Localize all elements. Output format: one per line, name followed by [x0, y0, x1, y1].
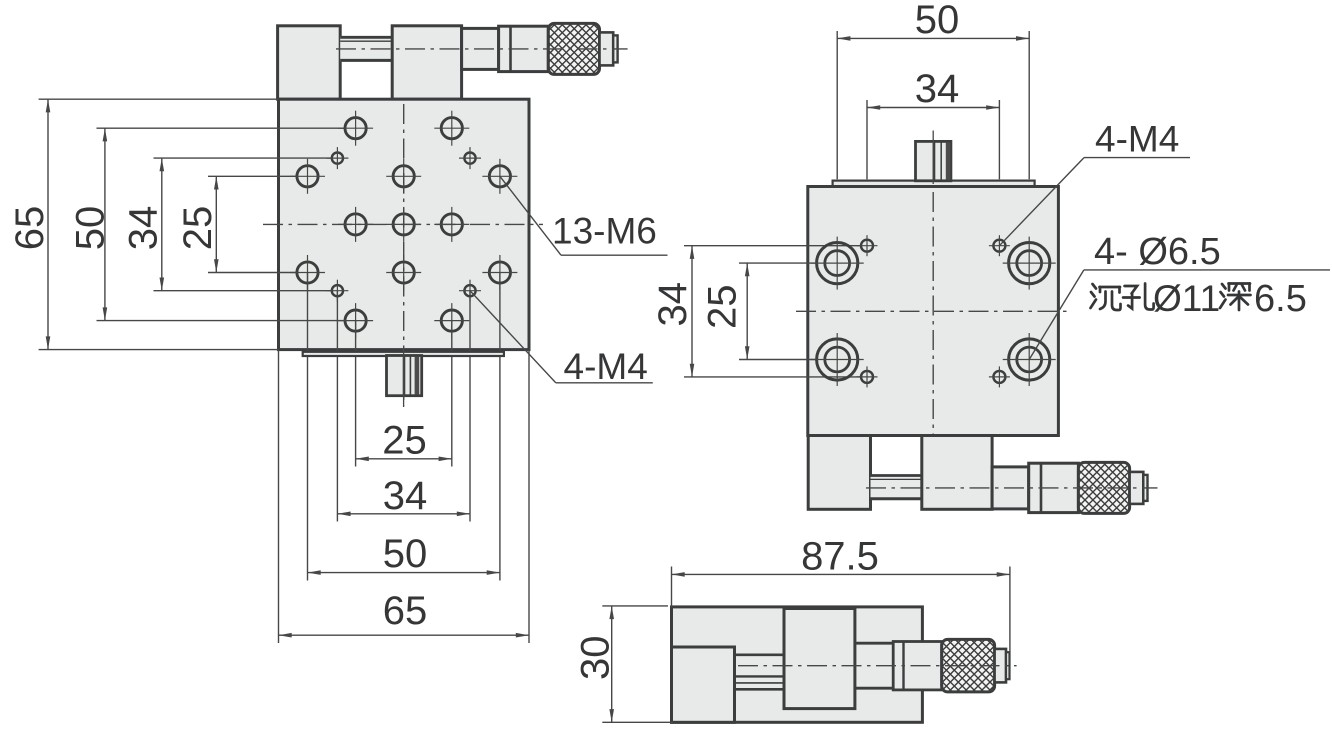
- svg-text:25: 25: [382, 419, 427, 463]
- svg-text:25: 25: [701, 284, 745, 329]
- svg-text:13-M6: 13-M6: [552, 211, 657, 252]
- svg-text:50: 50: [915, 0, 960, 42]
- svg-text:4- Ø6.5: 4- Ø6.5: [1094, 231, 1221, 273]
- svg-text:87.5: 87.5: [801, 535, 879, 579]
- svg-text:6.5: 6.5: [1254, 278, 1307, 320]
- svg-text:65: 65: [383, 589, 428, 633]
- svg-text:34: 34: [383, 474, 428, 518]
- svg-text:4-M4: 4-M4: [1095, 119, 1179, 160]
- svg-text:25: 25: [176, 206, 220, 251]
- svg-text:34: 34: [651, 282, 695, 327]
- svg-text:34: 34: [915, 67, 960, 111]
- svg-text:34: 34: [122, 206, 166, 251]
- svg-text:4-M4: 4-M4: [564, 346, 648, 387]
- svg-text:50: 50: [69, 206, 113, 251]
- svg-text:Ø11: Ø11: [1153, 278, 1220, 319]
- svg-text:50: 50: [383, 532, 428, 576]
- svg-text:30: 30: [574, 636, 618, 681]
- svg-text:65: 65: [8, 206, 52, 251]
